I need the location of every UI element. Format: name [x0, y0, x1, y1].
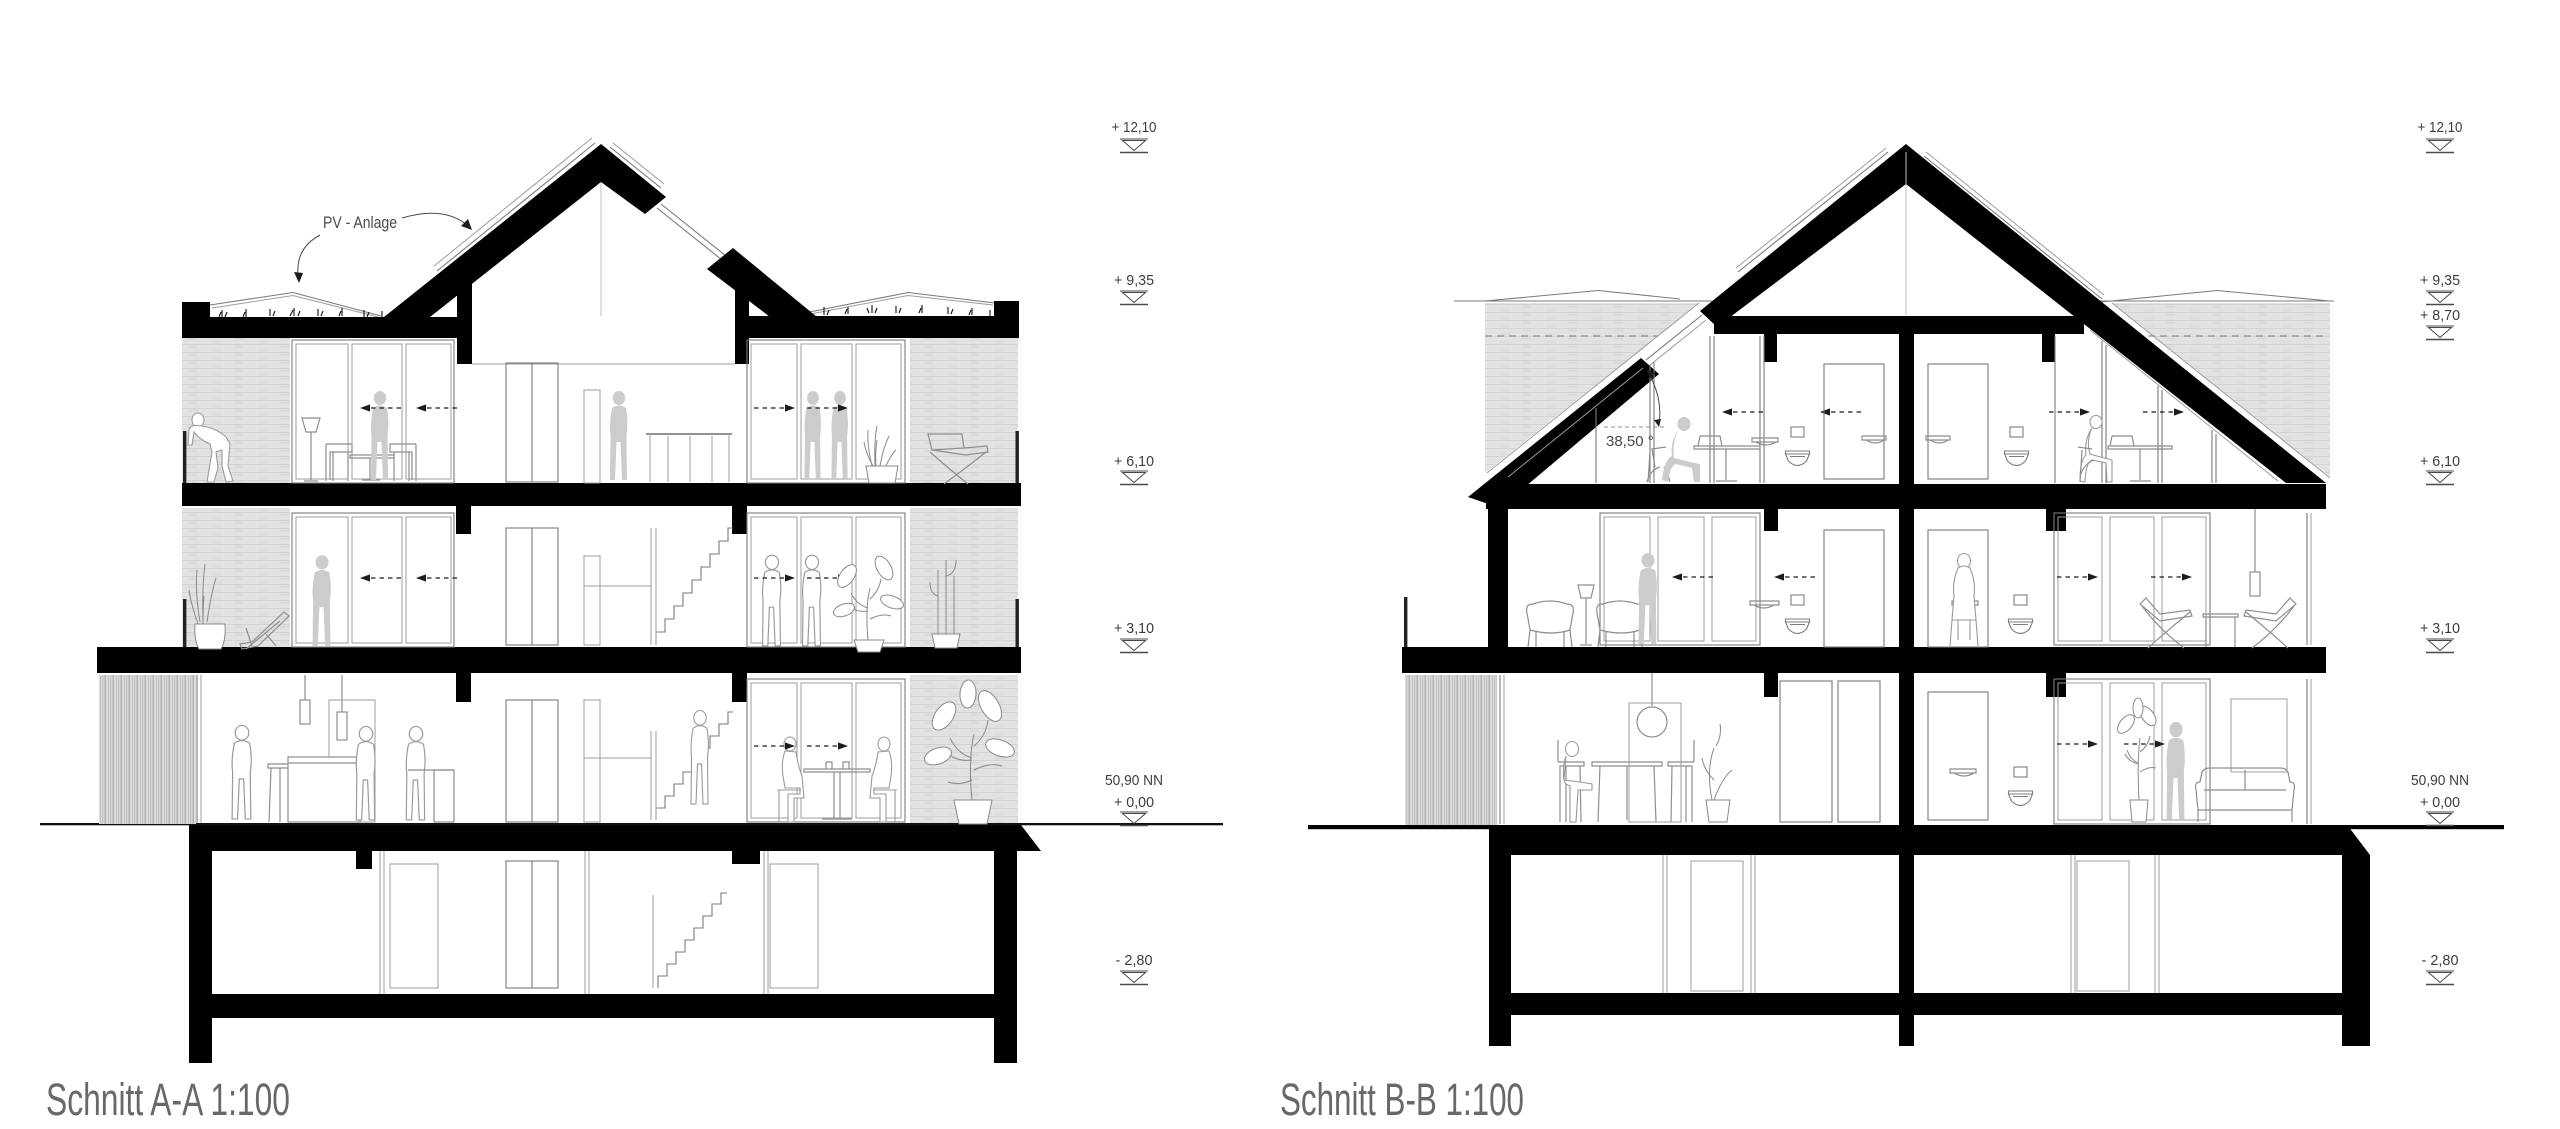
- svg-text:+ 3,10: + 3,10: [1114, 620, 1154, 637]
- svg-text:50,90 NN: 50,90 NN: [2411, 772, 2469, 789]
- svg-text:+ 6,10: + 6,10: [1114, 453, 1154, 470]
- svg-text:+ 12,10: + 12,10: [1112, 119, 1157, 136]
- svg-text:PV - Anlage: PV - Anlage: [323, 214, 397, 232]
- svg-text:+ 8,70: + 8,70: [2420, 307, 2460, 324]
- svg-text:+ 9,35: + 9,35: [2420, 272, 2460, 289]
- svg-text:- 2,80: - 2,80: [1116, 952, 1153, 969]
- svg-text:+ 6,10: + 6,10: [2420, 453, 2460, 470]
- svg-text:+ 3,10: + 3,10: [2420, 620, 2460, 637]
- svg-text:+ 0,00: + 0,00: [2420, 794, 2460, 811]
- svg-text:+ 9,35: + 9,35: [1114, 272, 1154, 289]
- svg-text:+ 0,00: + 0,00: [1114, 794, 1154, 811]
- svg-text:+ 12,10: + 12,10: [2418, 119, 2463, 136]
- svg-text:Schnitt B-B 1:100: Schnitt B-B 1:100: [1280, 1074, 1524, 1125]
- svg-text:Schnitt A-A 1:100: Schnitt A-A 1:100: [46, 1074, 290, 1125]
- svg-text:50,90 NN: 50,90 NN: [1105, 772, 1163, 789]
- svg-text:- 2,80: - 2,80: [2422, 952, 2459, 969]
- svg-text:38,50 °: 38,50 °: [1606, 433, 1654, 450]
